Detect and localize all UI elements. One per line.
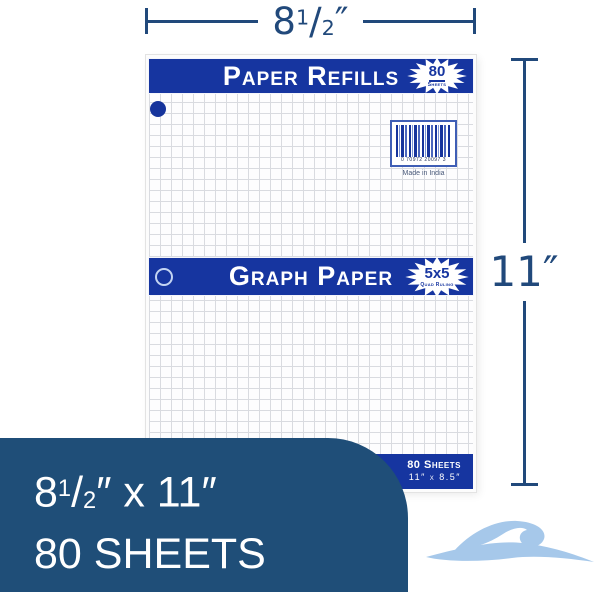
info-sheets-line: 80 SHEETS xyxy=(34,528,408,581)
sheet-count-caption: Sheets xyxy=(428,83,446,88)
info-size-frac-numerator: 1 xyxy=(58,476,71,502)
middle-banner-label: Graph Paper xyxy=(229,263,393,290)
dimension-line-bottom xyxy=(523,301,526,483)
height-dimension-label: 11″ xyxy=(489,251,558,293)
width-frac-slash: / xyxy=(309,0,321,43)
paper-refill-package: Paper Refills 80 Sheets 0 70972 20097 3 … xyxy=(146,55,476,492)
dimension-end-cap-right xyxy=(473,8,476,34)
sheet-count-badge-text: 80 Sheets xyxy=(428,64,446,88)
barcode: 0 70972 20097 3 xyxy=(390,120,457,167)
width-whole: 8 xyxy=(272,0,296,43)
top-banner-label: Paper Refills xyxy=(223,63,399,90)
info-size-whole: 8 xyxy=(34,469,58,517)
width-unit: ″ xyxy=(335,0,349,43)
width-frac-denominator: 2 xyxy=(322,16,335,40)
ruling-caption: Quad Ruling xyxy=(420,283,453,288)
info-size-frac-slash: / xyxy=(71,469,83,517)
wave-logo xyxy=(424,517,596,579)
barcode-bars-icon xyxy=(396,125,451,157)
middle-banner: Graph Paper 5x5 Quad Ruling xyxy=(149,258,473,295)
punch-hole-top xyxy=(150,101,166,117)
dimension-line-top xyxy=(523,61,526,243)
info-size-rest: ″ x 11″ xyxy=(96,469,216,517)
width-dimension-label: 81/2″ xyxy=(272,3,348,40)
dimension-line-left xyxy=(148,20,258,23)
size-info-box: 81/2″ x 11″ 80 SHEETS xyxy=(0,438,408,592)
dimension-line-right xyxy=(363,20,473,23)
sheet-count-badge: 80 Sheets xyxy=(406,57,468,95)
dimension-end-cap-bottom xyxy=(511,483,538,486)
made-in-label: Made in India xyxy=(390,170,457,178)
punch-hole-middle xyxy=(155,268,173,286)
width-frac-numerator: 1 xyxy=(296,5,309,29)
ruling-badge: 5x5 Quad Ruling xyxy=(404,256,470,298)
info-size-line: 81/2″ x 11″ xyxy=(34,463,408,528)
height-dimension: 11″ xyxy=(496,58,552,486)
sheet-count-value: 80 xyxy=(429,64,446,82)
ruling-value: 5x5 xyxy=(424,266,449,281)
width-dimension: 81/2″ xyxy=(145,0,476,42)
top-banner: Paper Refills 80 Sheets xyxy=(149,59,473,93)
barcode-digits: 0 70972 20097 3 xyxy=(396,157,451,164)
info-size-frac-denominator: 2 xyxy=(83,488,96,514)
ruling-badge-text: 5x5 Quad Ruling xyxy=(420,266,453,288)
